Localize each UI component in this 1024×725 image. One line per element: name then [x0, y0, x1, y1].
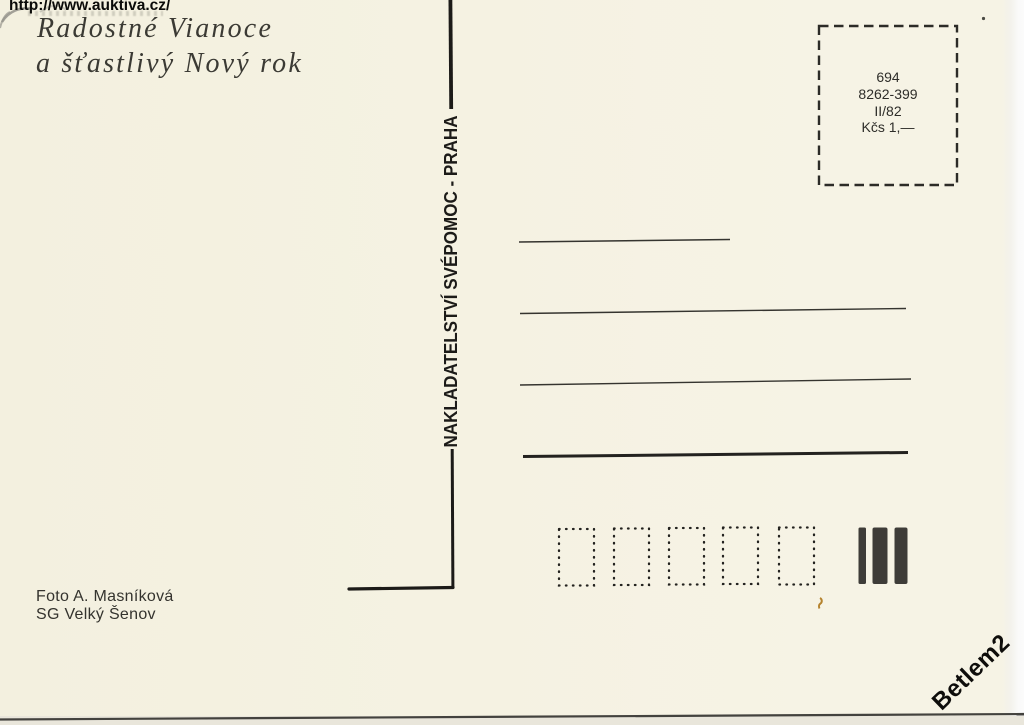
svg-text:NAKLADATELSTVÍ SVÉPOMOC - PRAH: NAKLADATELSTVÍ SVÉPOMOC - PRAHA: [440, 116, 461, 448]
